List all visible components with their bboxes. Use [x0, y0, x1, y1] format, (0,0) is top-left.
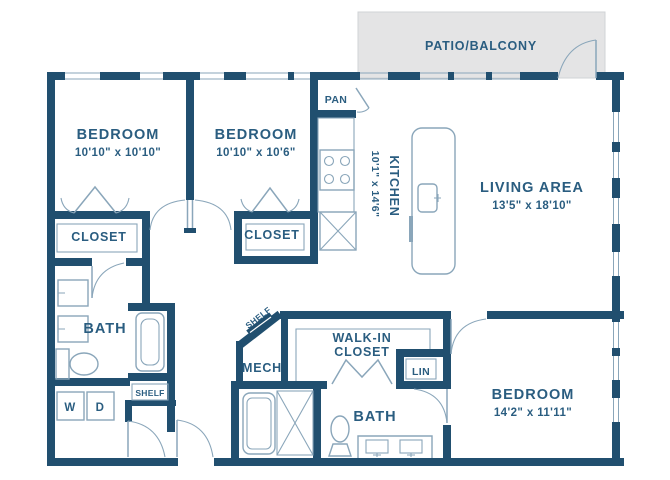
- wall-segment: [396, 381, 450, 389]
- walkin-closet-label-line2: CLOSET: [334, 345, 390, 359]
- wall-segment: [100, 72, 140, 80]
- wall-segment: [234, 211, 318, 219]
- shower-fixtures: [243, 391, 313, 455]
- wall-segment: [310, 110, 356, 118]
- wall-segment: [234, 256, 318, 264]
- patio-label: PATIO/BALCONY: [425, 39, 537, 53]
- wall-segment: [310, 80, 318, 264]
- bathtub-basin: [141, 319, 159, 365]
- faucet-icon: [434, 194, 441, 202]
- walkin-closet-doors-leaf: [332, 360, 392, 384]
- wall-segment: [612, 142, 620, 152]
- wall-segment: [612, 72, 620, 112]
- faucet-icon: [58, 289, 65, 297]
- kitchen-dims: 10'1" x 14'6": [369, 151, 381, 218]
- bedroom3-dims: 14'2" x 11'11": [494, 407, 572, 419]
- linen-label: LIN: [412, 366, 430, 378]
- wall-segment: [310, 72, 360, 80]
- burner-icon: [341, 157, 350, 166]
- wall-segment: [126, 258, 150, 266]
- wall-segment: [47, 72, 55, 466]
- fridge-cross: [320, 212, 356, 250]
- wall-segment: [443, 425, 451, 458]
- wall-segment: [280, 311, 450, 319]
- entry-door-swing-arc: [177, 420, 213, 457]
- closet1-doors-swing-arc: [61, 198, 129, 213]
- wall-segment: [167, 303, 175, 381]
- bath1-label: BATH: [83, 321, 126, 337]
- pantry-label: PAN: [325, 94, 348, 106]
- closet2-doors-swing-arc: [241, 199, 299, 212]
- living-area-label: LIVING AREA: [480, 180, 584, 196]
- wall-segment: [396, 349, 450, 357]
- pantry-door-swing-arc: [357, 108, 369, 112]
- wall-segment: [47, 258, 92, 266]
- shower-glass-cross: [277, 391, 313, 455]
- burner-icon: [325, 157, 334, 166]
- wall-segment: [186, 80, 194, 200]
- dryer-label: D: [96, 402, 105, 414]
- burner-icon: [341, 175, 350, 184]
- counter: [318, 118, 354, 212]
- bedroom2-dims: 10'10" x 10'6": [216, 147, 296, 159]
- bath2-door-swing-arc: [414, 389, 447, 423]
- wall-segment: [231, 381, 239, 458]
- stove-icon: [320, 150, 354, 190]
- wall-segment: [612, 348, 620, 356]
- wall-segment: [47, 458, 178, 466]
- wall-segment: [288, 72, 294, 80]
- bedroom1-label: BEDROOM: [77, 127, 160, 143]
- vanity-counter: [358, 436, 432, 458]
- wall-segment: [448, 72, 454, 80]
- wall-segment: [231, 381, 327, 389]
- wall-segment: [142, 211, 150, 303]
- floorplan-page: PATIO/BALCONY BEDROOM 10'10" x 10'10" BE…: [0, 0, 670, 480]
- wall-segment: [520, 72, 558, 80]
- walkin-closet-label-line1: WALK-IN: [332, 331, 391, 345]
- bedroom-doors-swing-arc: [150, 200, 231, 230]
- closet1-doors-leaf: [74, 187, 116, 213]
- shelf-hall-label: SHELF: [135, 388, 164, 398]
- bedroom1-dims: 10'10" x 10'10": [75, 147, 161, 159]
- wall-segment: [52, 211, 150, 219]
- shower-pan-inner: [247, 398, 271, 449]
- wall-segment: [47, 72, 65, 80]
- faucet-icon: [58, 325, 65, 333]
- kitchen-fixtures: [318, 118, 455, 274]
- toilet-icon: [70, 353, 98, 375]
- closet2-label: CLOSET: [244, 228, 300, 242]
- faucet-icon: [407, 453, 415, 457]
- wall-segment: [443, 311, 451, 389]
- bath1-door-swing-arc: [92, 263, 124, 298]
- bath2-label: BATH: [353, 409, 396, 425]
- bedroom3-label: BEDROOM: [492, 387, 575, 403]
- wall-segment: [281, 311, 288, 383]
- sink-icon: [400, 440, 422, 453]
- mech-label: MECH: [242, 361, 282, 375]
- wall-segment: [184, 228, 196, 233]
- bedroom2-label: BEDROOM: [215, 127, 298, 143]
- wall-segment: [313, 389, 321, 458]
- wall-segment: [214, 458, 624, 466]
- laundry-door-swing-arc: [128, 421, 165, 457]
- toilet-tank-icon: [56, 349, 69, 379]
- toilet-base: [329, 444, 351, 456]
- pantry-door-leaf: [356, 88, 369, 108]
- washer-label: W: [64, 402, 75, 414]
- wall-segment: [224, 72, 246, 80]
- wall-segment: [163, 72, 200, 80]
- bedroom3-door-swing-arc: [451, 319, 486, 354]
- floorplan-drawing: PATIO/BALCONY BEDROOM 10'10" x 10'10" BE…: [0, 0, 670, 480]
- bathtub-icon: [136, 313, 164, 371]
- dishwasher-mark: [409, 216, 413, 242]
- wall-segment: [487, 311, 624, 319]
- closet2-doors-leaf: [252, 188, 288, 212]
- faucet-icon: [373, 453, 381, 457]
- wall-segment: [486, 72, 492, 80]
- bedroom-doors-leaf: [188, 200, 193, 228]
- wall-segment: [612, 224, 620, 252]
- shower-pan-icon: [243, 393, 275, 454]
- wall-segment: [612, 178, 620, 198]
- wall-segment: [388, 72, 420, 80]
- sink-icon: [366, 440, 388, 453]
- closet1-label: CLOSET: [71, 230, 127, 244]
- wall-segment: [612, 380, 620, 398]
- wall-segment: [125, 400, 132, 422]
- burner-icon: [325, 175, 334, 184]
- toilet-icon: [331, 416, 349, 442]
- living-area-dims: 13'5" x 18'10": [492, 200, 572, 212]
- wall-segment: [612, 422, 620, 466]
- kitchen-label: KITCHEN: [387, 155, 401, 216]
